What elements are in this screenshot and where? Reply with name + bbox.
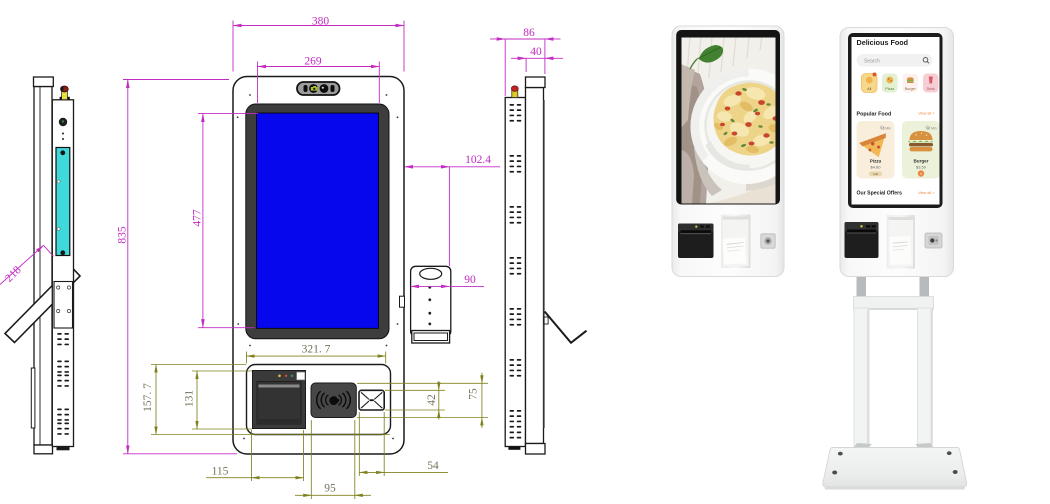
svg-text:75: 75 (468, 388, 480, 400)
svg-text:Burger: Burger (913, 159, 928, 164)
svg-text:15 Min: 15 Min (881, 126, 891, 130)
svg-text:View all >: View all > (918, 112, 935, 116)
svg-text:157. 7: 157. 7 (142, 383, 154, 412)
svg-text:$4.60: $4.60 (870, 165, 881, 170)
svg-text:10 Min: 10 Min (926, 126, 936, 130)
svg-text:Drink: Drink (927, 87, 936, 91)
svg-text:$3.50: $3.50 (916, 165, 927, 170)
svg-text:Burger: Burger (905, 87, 917, 91)
svg-text:115: 115 (212, 466, 229, 478)
svg-text:477: 477 (191, 209, 203, 227)
svg-text:321. 7: 321. 7 (302, 344, 331, 356)
svg-text:Pizza: Pizza (870, 159, 882, 164)
svg-text:86: 86 (523, 27, 535, 39)
svg-text:269: 269 (304, 56, 322, 68)
svg-text:54: 54 (427, 460, 439, 472)
svg-text:Popular Food: Popular Food (857, 112, 892, 118)
svg-text:90: 90 (464, 274, 476, 286)
svg-text:Add: Add (873, 172, 879, 176)
svg-text:835: 835 (116, 226, 128, 244)
svg-text:102.4: 102.4 (465, 154, 491, 166)
svg-text:95: 95 (324, 483, 336, 495)
svg-text:Search: Search (864, 59, 880, 65)
svg-text:All: All (867, 87, 871, 91)
svg-text:42: 42 (426, 394, 438, 406)
svg-text:Our Special Offers: Our Special Offers (857, 191, 903, 197)
svg-text:Pizza: Pizza (885, 87, 894, 91)
svg-text:380: 380 (312, 16, 330, 28)
svg-text:+: + (920, 171, 923, 176)
svg-text:Delicious Food: Delicious Food (857, 38, 909, 47)
svg-text:40: 40 (530, 46, 542, 58)
svg-text:View all >: View all > (918, 191, 935, 195)
svg-text:131: 131 (184, 390, 196, 408)
